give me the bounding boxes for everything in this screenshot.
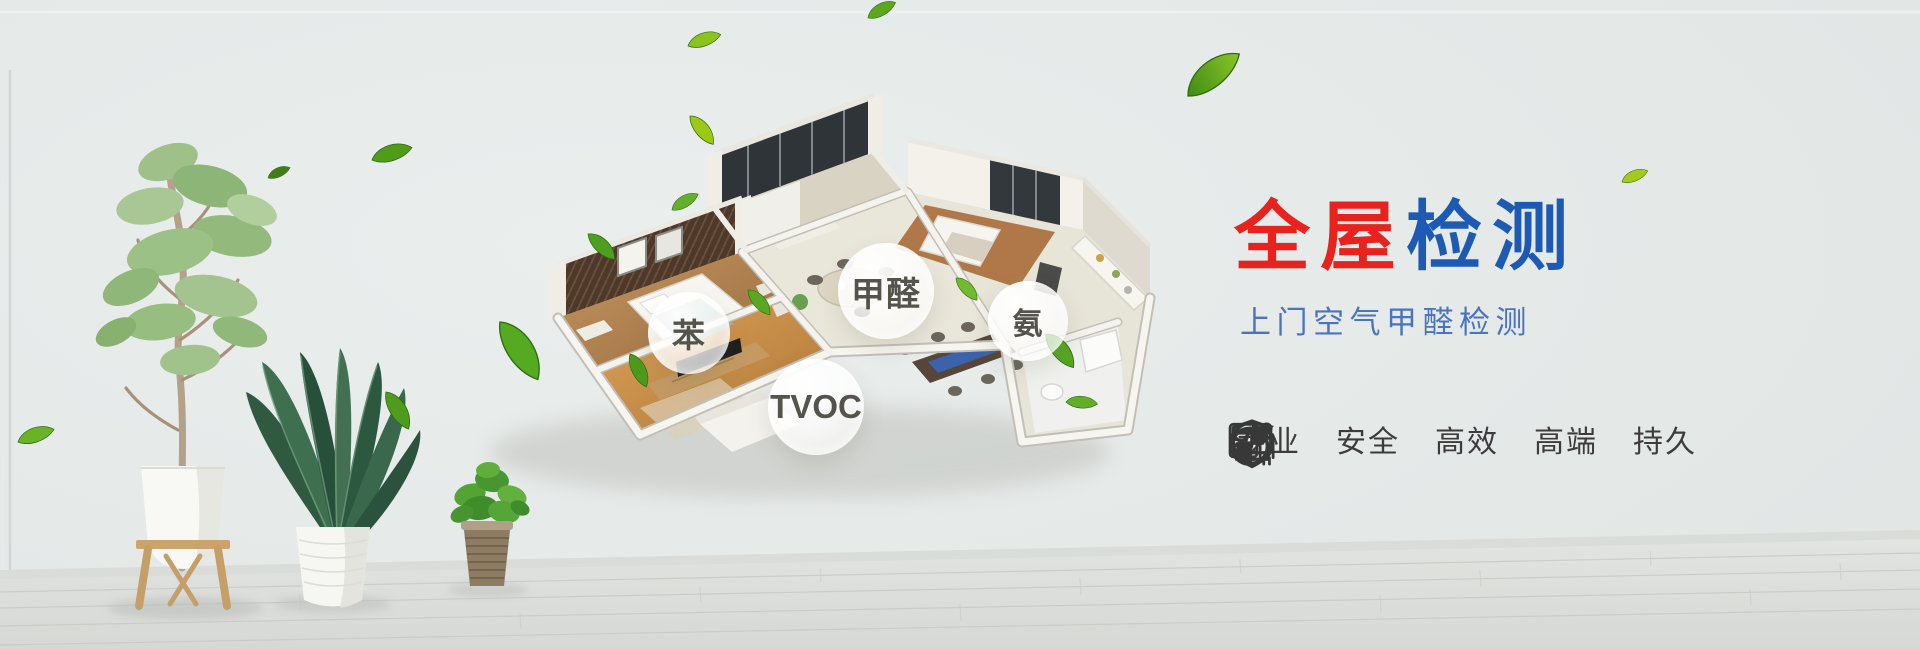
pollutant-label: 氨 [1013,299,1044,343]
feature-label: 安全 [1336,417,1400,461]
pollutant-bubble-formaldehyde: 甲醛 [838,243,934,339]
tall-potted-plant [91,135,281,606]
feature-safety: 安全 [1325,417,1411,461]
wood-floor [0,530,1920,650]
clock-icon [1226,417,1278,469]
title-part-blue: 检测 [1406,195,1578,280]
pollutant-label: 甲醛 [851,267,921,316]
feature-label: 高效 [1435,417,1499,461]
feature-list: 专业 安全 高效 高端 [1226,417,1708,461]
feature-label: 高端 [1534,417,1598,461]
feature-highend: 高端 [1523,417,1609,461]
tree-foliage [91,135,281,378]
title-part-red: 全屋 [1234,195,1406,280]
page-subtitle: 上门空气甲醛检测 [1240,297,1532,342]
white-planter [141,466,225,569]
page-title: 全屋检测 [1234,198,1578,278]
pollutant-bubble-benzene: 苯 [648,292,730,374]
hero-banner: 苯 甲醛 氨 TVOC 全屋检测 上门空气甲醛检测 专业 [0,0,1920,650]
pollutant-bubble-tvoc: TVOC [768,359,864,455]
feature-efficiency: 高效 [1424,417,1510,461]
pollutant-label: 苯 [672,309,706,357]
ribbed-white-pot [296,527,370,608]
feature-label: 持久 [1633,417,1697,461]
mid-plant-leaves [246,348,420,545]
pollutant-label: TVOC [770,388,862,426]
banner-illustration [0,0,1920,650]
feature-lasting: 持久 [1622,417,1708,461]
pollutant-bubble-ammonia: 氨 [988,281,1068,361]
